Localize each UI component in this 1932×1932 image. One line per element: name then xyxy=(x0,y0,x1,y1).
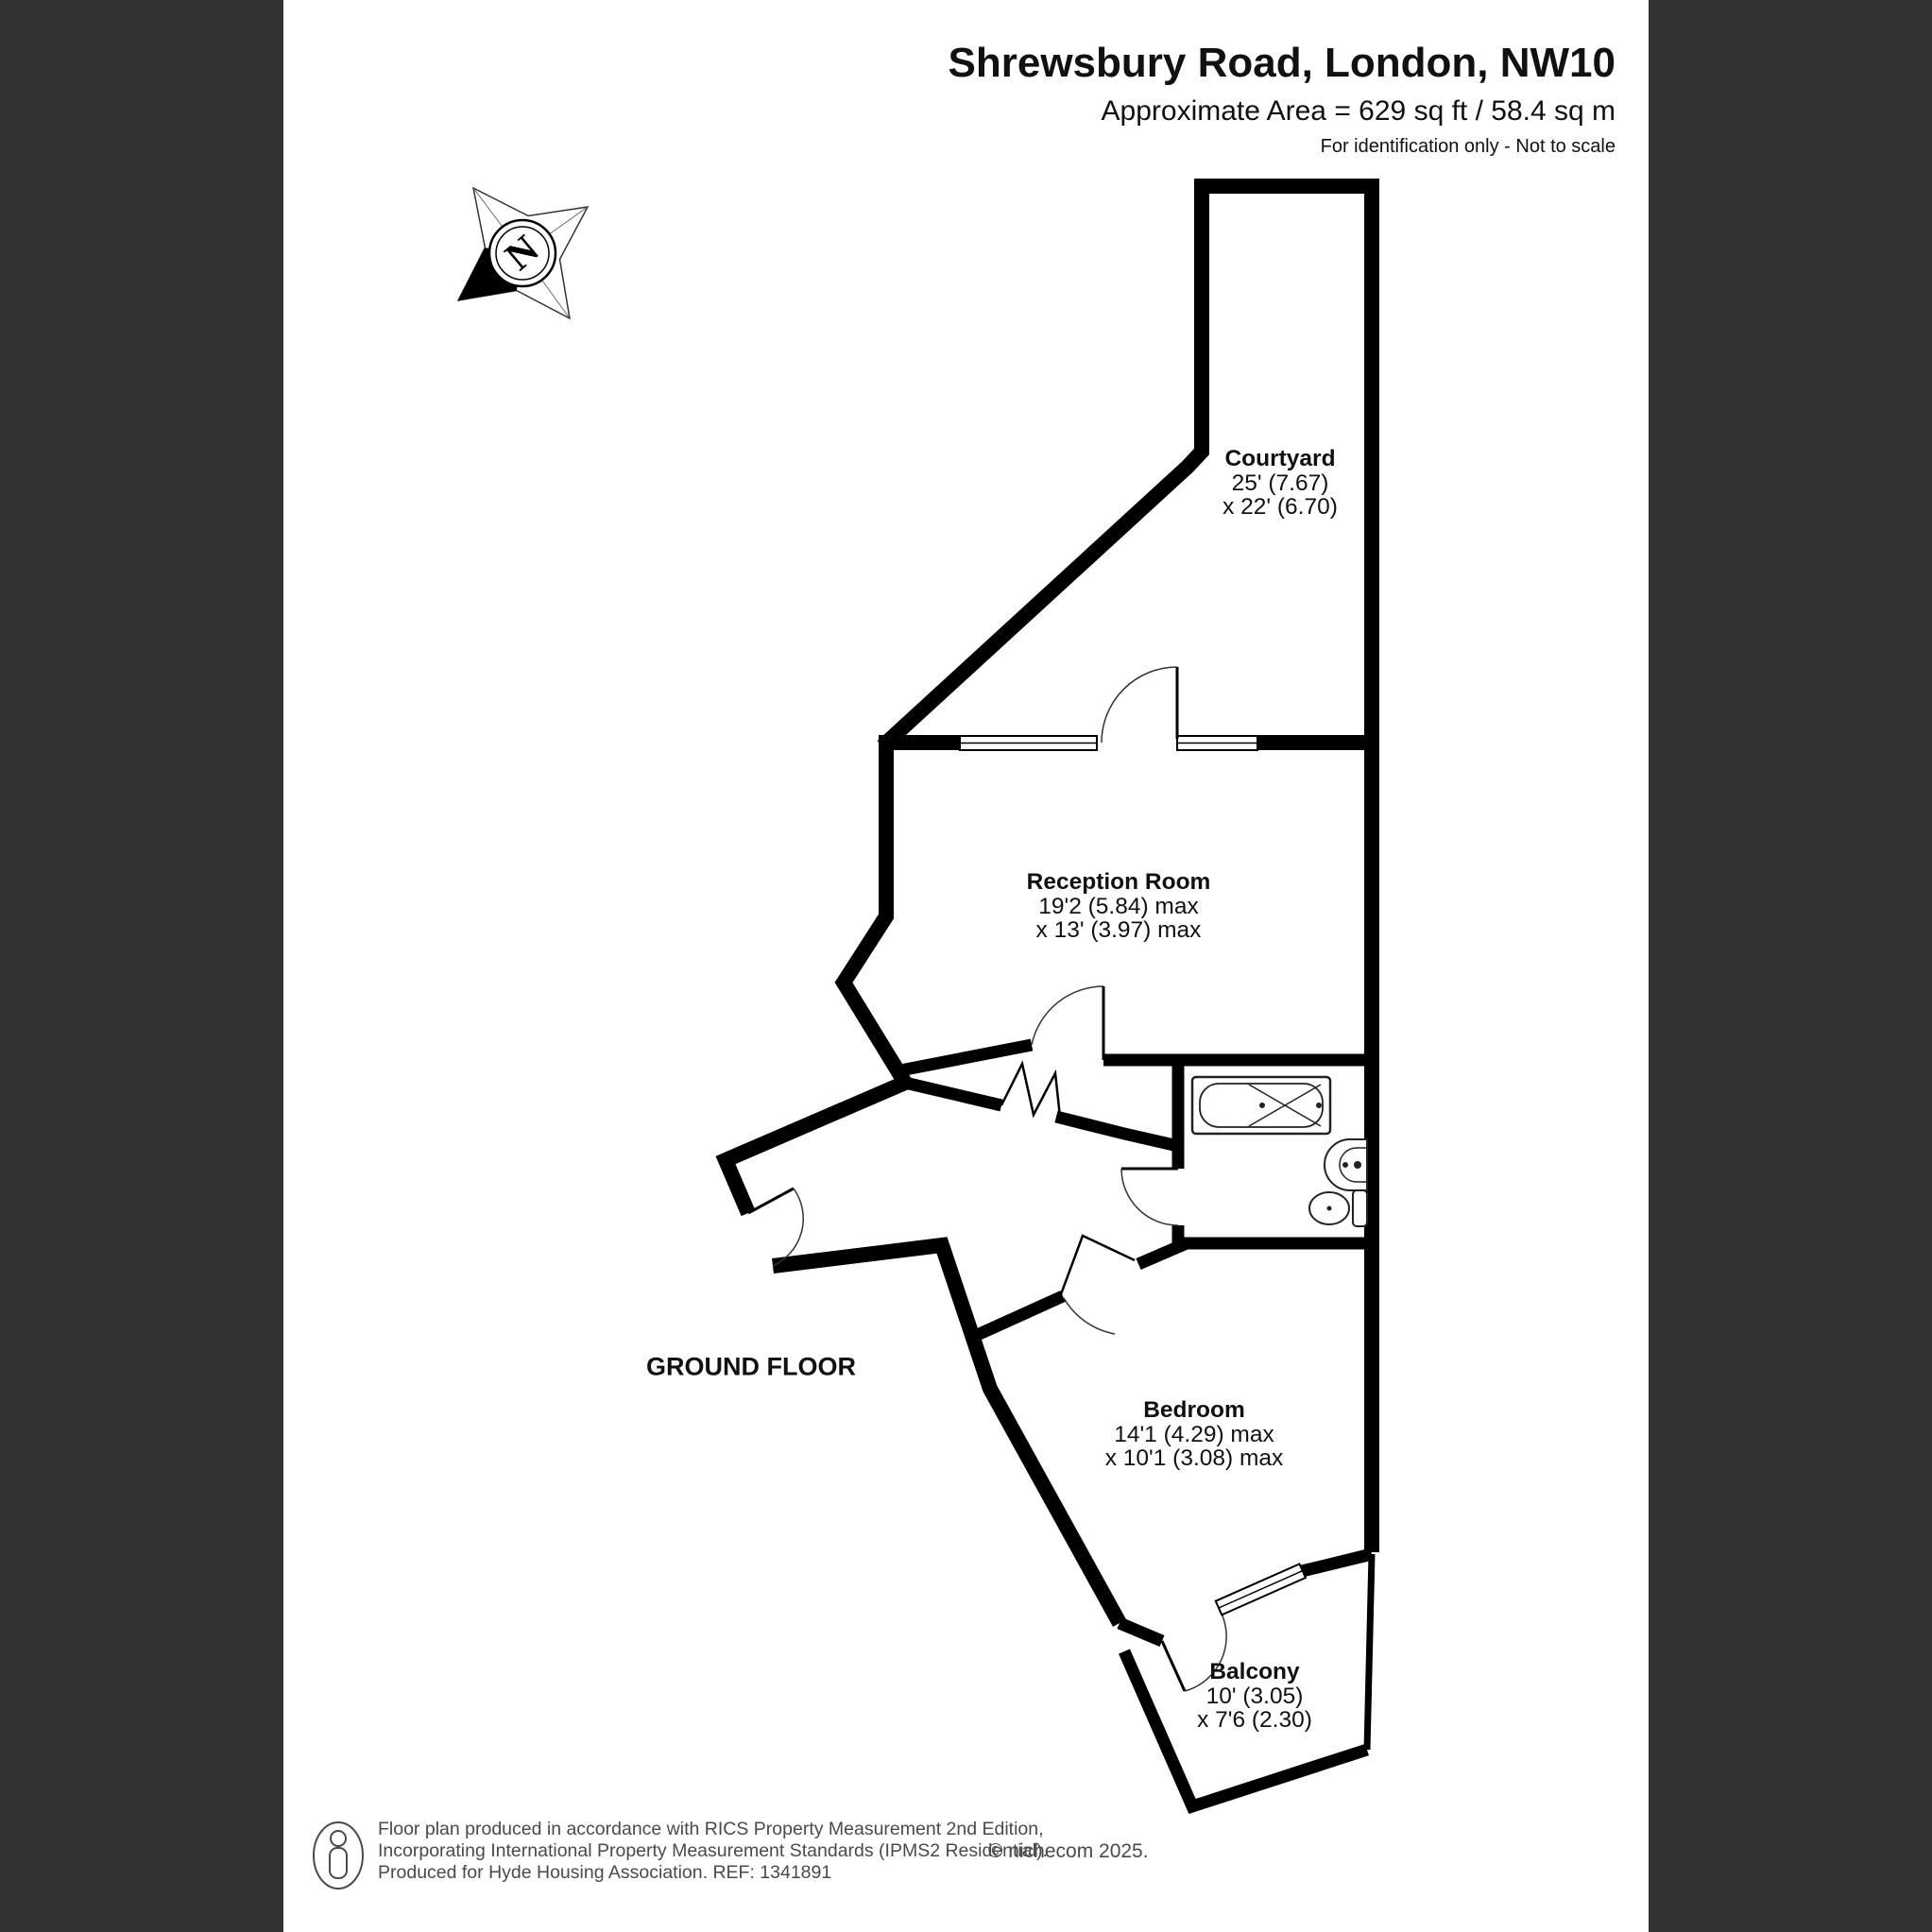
wall-bedroom-left xyxy=(773,1245,1120,1623)
room-dim: x 22' (6.70) xyxy=(1222,495,1338,520)
room-dim: 19'2 (5.84) max xyxy=(1027,894,1211,918)
exterior-walls xyxy=(726,179,1372,1806)
toilet-icon xyxy=(1309,1190,1367,1226)
room-name: Courtyard xyxy=(1222,447,1338,471)
room-label-reception: Reception Room 19'2 (5.84) max x 13' (3.… xyxy=(1027,870,1211,943)
door-arc-bathroom xyxy=(1121,1169,1178,1225)
footer-disclaimer: Floor plan produced in accordance with R… xyxy=(378,1819,1048,1884)
floorplan-drawing: N xyxy=(0,0,1932,1932)
room-name: Balcony xyxy=(1197,1660,1312,1684)
room-dim: 10' (3.05) xyxy=(1197,1684,1312,1708)
room-dim: x 10'1 (3.08) max xyxy=(1105,1446,1284,1471)
sink-icon xyxy=(1325,1139,1367,1190)
window-icon xyxy=(1177,736,1257,750)
rics-person-icon xyxy=(312,1821,365,1890)
wall-courtyard-left-diagonal xyxy=(882,179,1202,746)
bathtub-icon xyxy=(1192,1077,1330,1134)
room-name: Reception Room xyxy=(1027,870,1211,895)
closet-door-icon xyxy=(1001,1064,1060,1117)
door-arc-entrance xyxy=(748,1188,803,1266)
wall-reception-left xyxy=(844,743,905,1083)
floorplan-page: Shrewsbury Road, London, NW10 Approximat… xyxy=(0,0,1932,1932)
copyright-notice: © nichecom 2025. xyxy=(988,1840,1149,1863)
window-icon xyxy=(1216,1564,1306,1615)
room-name: Bedroom xyxy=(1105,1398,1284,1423)
room-dim: x 7'6 (2.30) xyxy=(1197,1708,1312,1733)
room-dim: 14'1 (4.29) max xyxy=(1105,1422,1284,1446)
room-label-balcony: Balcony 10' (3.05) x 7'6 (2.30) xyxy=(1197,1660,1312,1733)
room-label-bedroom: Bedroom 14'1 (4.29) max x 10'1 (3.08) ma… xyxy=(1105,1398,1284,1471)
footer-line-2: Incorporating International Property Mea… xyxy=(378,1840,1048,1862)
floor-label: GROUND FLOOR xyxy=(646,1353,856,1382)
room-label-courtyard: Courtyard 25' (7.67) x 22' (6.70) xyxy=(1222,447,1338,520)
door-arc-reception xyxy=(1032,986,1103,1060)
wall-hall-upper xyxy=(726,1083,905,1213)
footer-line-3: Produced for Hyde Housing Association. R… xyxy=(378,1862,1048,1884)
compass-icon: N xyxy=(458,188,588,318)
door-arc-bedroom xyxy=(1061,1236,1135,1334)
window-icon xyxy=(960,736,1097,750)
room-dim: x 13' (3.97) max xyxy=(1027,918,1211,943)
wall-right-exterior xyxy=(1202,186,1372,1552)
door-arc-courtyard xyxy=(1102,667,1177,743)
room-dim: 25' (7.67) xyxy=(1222,470,1338,495)
interior-walls-middle xyxy=(896,1045,1187,1146)
wall-balcony-right xyxy=(1367,1554,1372,1750)
footer-line-1: Floor plan produced in accordance with R… xyxy=(378,1819,1048,1840)
